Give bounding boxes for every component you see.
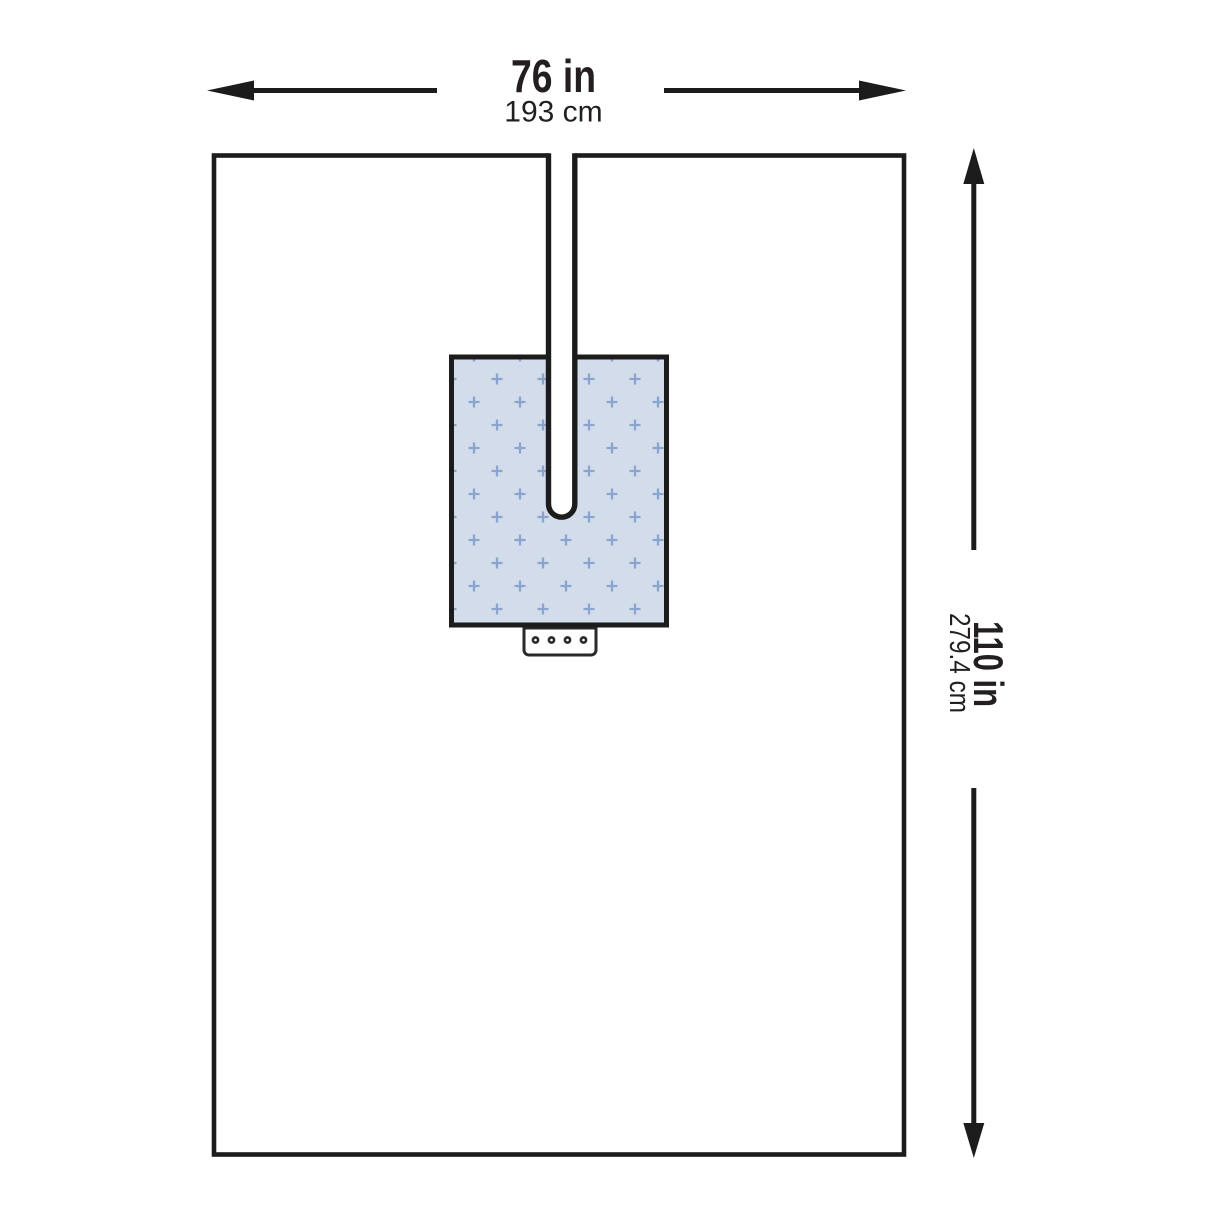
svg-text:76 in: 76 in [511,50,596,102]
svg-text:193 cm: 193 cm [504,96,602,129]
svg-text:279.4 cm: 279.4 cm [943,613,975,713]
